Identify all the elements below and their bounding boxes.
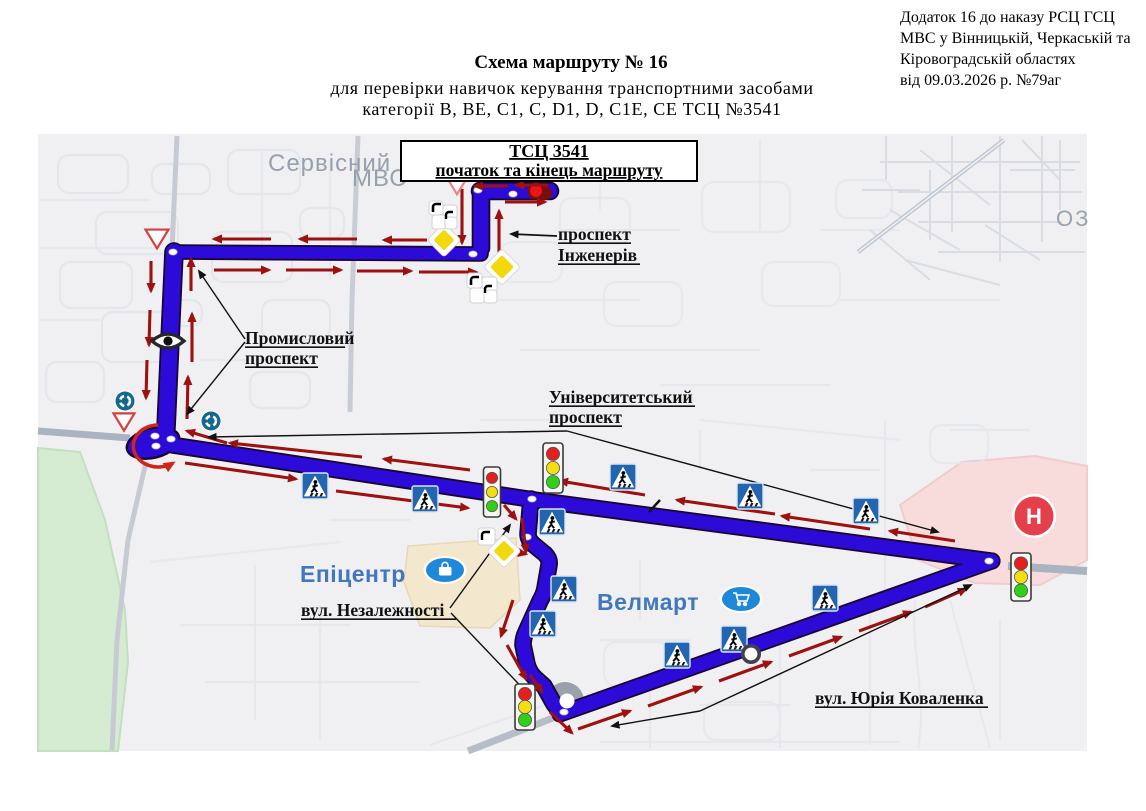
svg-text:Схема маршруту № 16: Схема маршруту № 16	[474, 52, 667, 73]
svg-text:Університетський: Університетський	[549, 387, 693, 407]
svg-text:Велмарт: Велмарт	[597, 589, 699, 615]
svg-text:від 09.03.2026 р. №79аг: від 09.03.2026 р. №79аг	[900, 72, 1062, 89]
svg-text:для перевірки навичок керуванн: для перевірки навичок керування транспор…	[330, 78, 813, 98]
svg-text:проспект: проспект	[245, 348, 318, 368]
svg-text:категорії B, BE, C1, C, D1, D,: категорії B, BE, C1, C, D1, D, C1E, CE Т…	[362, 99, 781, 119]
svg-text:Кіровоградській областях: Кіровоградській областях	[900, 51, 1076, 68]
svg-text:Н: Н	[1026, 504, 1042, 529]
svg-text:проспект: проспект	[558, 224, 631, 244]
svg-text:Інженерів: Інженерів	[558, 245, 637, 265]
svg-text:початок та кінець маршруту: початок та кінець маршруту	[436, 160, 663, 180]
svg-text:ТСЦ 3541: ТСЦ 3541	[509, 141, 589, 161]
svg-text:МВС: МВС	[352, 165, 408, 192]
svg-text:ОЗ: ОЗ	[1056, 206, 1090, 231]
svg-text:Додаток 16 до наказу РСЦ ГСЦ: Додаток 16 до наказу РСЦ ГСЦ	[900, 9, 1115, 26]
svg-text:вул. Юрія Коваленка: вул. Юрія Коваленка	[815, 688, 984, 708]
svg-text:Промисловий: Промисловий	[245, 328, 354, 348]
svg-text:Епіцентр: Епіцентр	[300, 561, 406, 587]
svg-text:МВС у Вінницькій, Черкаській т: МВС у Вінницькій, Черкаській та	[900, 30, 1131, 47]
svg-text:проспект: проспект	[549, 407, 622, 427]
svg-text:вул. Незалежності: вул. Незалежності	[301, 600, 445, 620]
